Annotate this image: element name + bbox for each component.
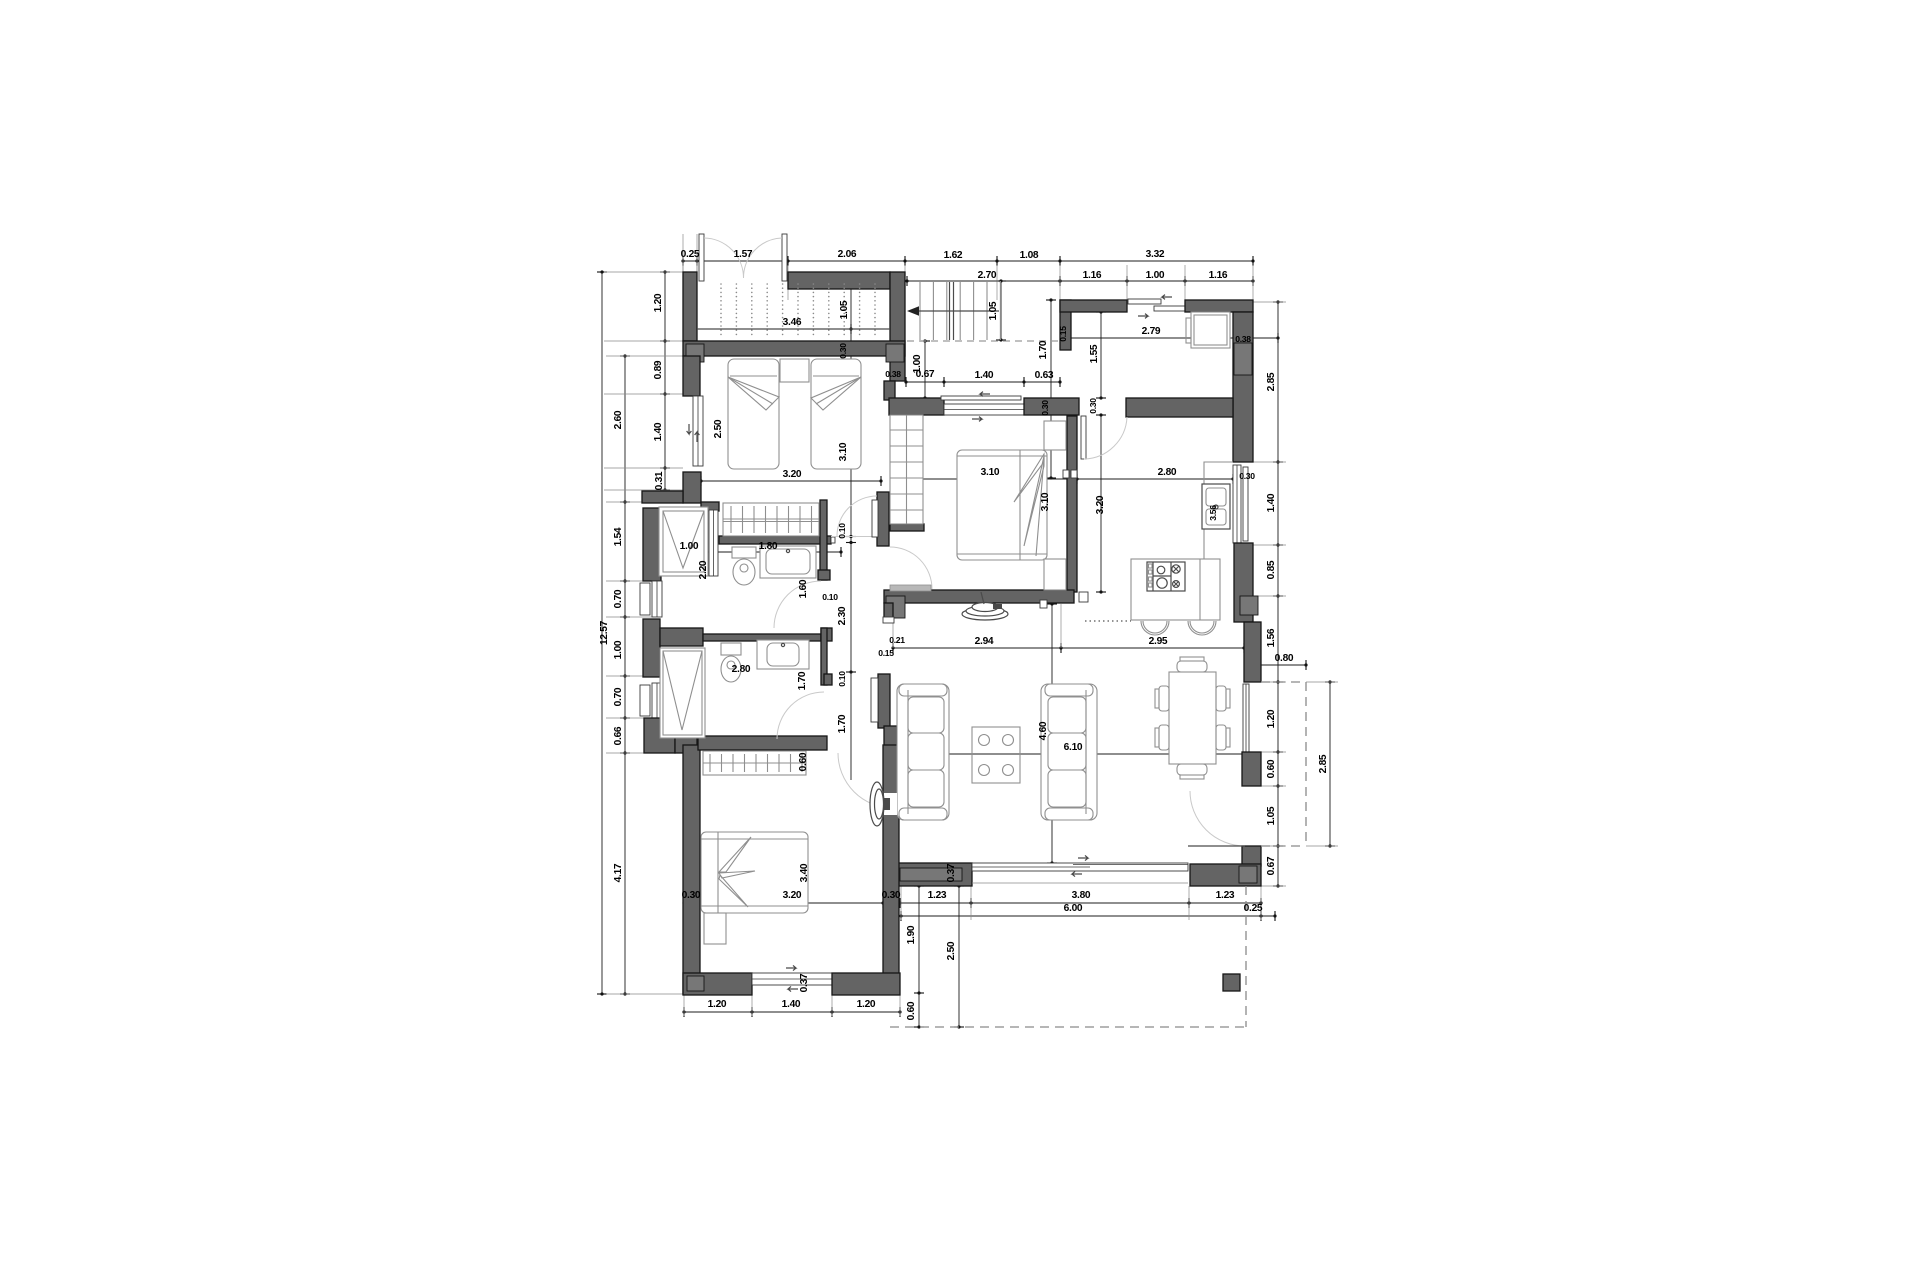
svg-text:0.60: 0.60 — [798, 752, 809, 771]
svg-text:0.85: 0.85 — [1266, 560, 1277, 579]
svg-text:2.80: 2.80 — [732, 664, 751, 675]
svg-text:0.67: 0.67 — [1266, 856, 1277, 875]
svg-text:1.55: 1.55 — [1089, 344, 1100, 363]
svg-text:2.70: 2.70 — [978, 270, 997, 281]
svg-text:0.70: 0.70 — [613, 687, 624, 706]
svg-text:12.57: 12.57 — [599, 620, 610, 645]
svg-text:0.67: 0.67 — [916, 369, 935, 380]
svg-text:3.80: 3.80 — [1072, 890, 1091, 901]
svg-text:0.10: 0.10 — [837, 523, 847, 539]
svg-text:0.10: 0.10 — [822, 592, 838, 602]
svg-text:1.54: 1.54 — [613, 527, 624, 546]
svg-text:2.30: 2.30 — [837, 606, 848, 625]
svg-text:3.32: 3.32 — [1146, 249, 1165, 260]
svg-text:0.30: 0.30 — [1040, 400, 1050, 416]
svg-text:0.63: 0.63 — [1035, 370, 1054, 381]
svg-text:0.37: 0.37 — [799, 973, 810, 992]
svg-text:0.38: 0.38 — [1235, 334, 1251, 344]
svg-text:1.16: 1.16 — [1209, 270, 1228, 281]
svg-text:6.00: 6.00 — [1064, 903, 1083, 914]
svg-text:0.25: 0.25 — [1244, 903, 1263, 914]
svg-text:0.80: 0.80 — [1275, 653, 1294, 664]
svg-text:1.20: 1.20 — [1266, 709, 1277, 728]
svg-text:1.40: 1.40 — [975, 370, 994, 381]
svg-text:1.05: 1.05 — [988, 301, 999, 320]
svg-text:1.70: 1.70 — [1038, 340, 1049, 359]
svg-text:1.57: 1.57 — [734, 249, 753, 260]
svg-text:2.50: 2.50 — [946, 941, 957, 960]
svg-text:1.80: 1.80 — [759, 541, 778, 552]
svg-text:3.20: 3.20 — [1095, 495, 1106, 514]
svg-text:1.08: 1.08 — [1020, 250, 1039, 261]
svg-text:1.70: 1.70 — [837, 714, 848, 733]
svg-text:0.30: 0.30 — [682, 890, 701, 901]
svg-text:0.30: 0.30 — [838, 343, 848, 359]
svg-text:1.90: 1.90 — [906, 925, 917, 944]
svg-text:2.80: 2.80 — [1158, 467, 1177, 478]
svg-text:1.20: 1.20 — [653, 293, 664, 312]
svg-text:0.30: 0.30 — [1239, 471, 1255, 481]
svg-text:3.10: 3.10 — [1040, 492, 1051, 511]
svg-text:1.23: 1.23 — [928, 890, 947, 901]
svg-text:1.05: 1.05 — [839, 300, 850, 319]
svg-text:3.40: 3.40 — [799, 863, 810, 882]
svg-text:1.40: 1.40 — [1266, 493, 1277, 512]
svg-text:0.60: 0.60 — [1266, 759, 1277, 778]
svg-text:0.30: 0.30 — [882, 890, 901, 901]
svg-text:0.25: 0.25 — [681, 249, 700, 260]
svg-text:6.10: 6.10 — [1064, 742, 1083, 753]
svg-text:2.20: 2.20 — [698, 560, 709, 579]
svg-text:3.10: 3.10 — [981, 467, 1000, 478]
svg-text:3.20: 3.20 — [783, 469, 802, 480]
svg-text:2.94: 2.94 — [975, 636, 994, 647]
svg-text:2.85: 2.85 — [1266, 372, 1277, 391]
svg-text:0.15: 0.15 — [1058, 326, 1068, 342]
svg-text:0.15: 0.15 — [878, 648, 894, 658]
svg-text:1.00: 1.00 — [680, 541, 699, 552]
svg-text:0.30: 0.30 — [1088, 398, 1098, 414]
svg-text:0.60: 0.60 — [906, 1001, 917, 1020]
svg-text:3.20: 3.20 — [783, 890, 802, 901]
svg-text:1.00: 1.00 — [613, 640, 624, 659]
svg-text:0.70: 0.70 — [613, 589, 624, 608]
svg-text:2.95: 2.95 — [1149, 636, 1168, 647]
svg-text:1.05: 1.05 — [1266, 806, 1277, 825]
svg-text:0.10: 0.10 — [837, 671, 847, 687]
svg-text:1.40: 1.40 — [653, 422, 664, 441]
svg-text:2.79: 2.79 — [1142, 326, 1161, 337]
svg-text:2.50: 2.50 — [713, 419, 724, 438]
svg-text:0.37: 0.37 — [946, 863, 957, 882]
svg-text:1.40: 1.40 — [782, 999, 801, 1010]
svg-text:1.00: 1.00 — [1146, 270, 1165, 281]
svg-text:1.56: 1.56 — [1266, 628, 1277, 647]
svg-text:3.46: 3.46 — [783, 317, 802, 328]
svg-text:4.60: 4.60 — [1038, 721, 1049, 740]
svg-text:1.20: 1.20 — [857, 999, 876, 1010]
svg-text:1.60: 1.60 — [798, 579, 809, 598]
svg-text:0.21: 0.21 — [889, 635, 905, 645]
svg-text:3.10: 3.10 — [838, 442, 849, 461]
svg-text:2.06: 2.06 — [838, 249, 857, 260]
svg-text:1.16: 1.16 — [1083, 270, 1102, 281]
svg-text:2.60: 2.60 — [613, 410, 624, 429]
svg-text:1.70: 1.70 — [797, 671, 808, 690]
svg-text:1.23: 1.23 — [1216, 890, 1235, 901]
svg-text:0.38: 0.38 — [885, 369, 901, 379]
svg-text:0.89: 0.89 — [653, 360, 664, 379]
svg-text:1.62: 1.62 — [944, 250, 963, 261]
svg-text:0.31: 0.31 — [654, 471, 665, 490]
svg-text:4.17: 4.17 — [613, 863, 624, 882]
svg-text:0.66: 0.66 — [613, 726, 624, 745]
svg-text:1.20: 1.20 — [708, 999, 727, 1010]
svg-text:3.56: 3.56 — [1208, 505, 1218, 521]
svg-text:2.85: 2.85 — [1318, 754, 1329, 773]
